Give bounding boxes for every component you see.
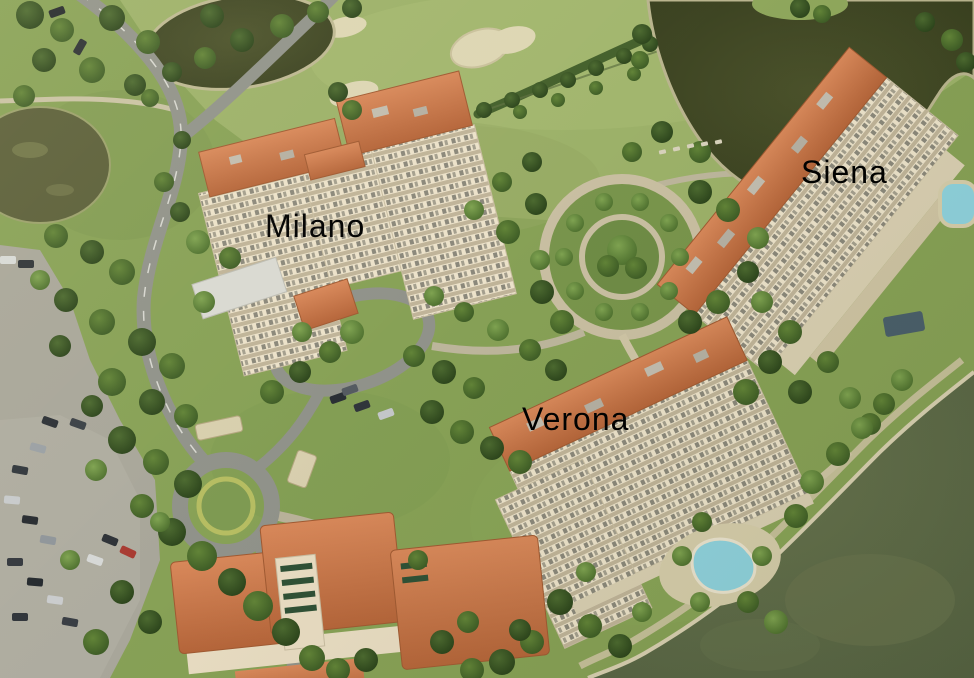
tree — [576, 562, 596, 582]
tree — [98, 368, 126, 396]
tree — [81, 395, 103, 417]
tree — [194, 47, 216, 69]
tree — [631, 303, 649, 321]
tree — [873, 393, 895, 415]
tree — [186, 230, 210, 254]
tree — [678, 310, 702, 334]
tree — [788, 380, 812, 404]
tree — [340, 320, 364, 344]
tree — [480, 436, 504, 460]
tree — [813, 5, 831, 23]
tree — [489, 649, 515, 675]
tree — [627, 67, 641, 81]
tree — [530, 280, 554, 304]
tree — [243, 591, 273, 621]
tree — [342, 100, 362, 120]
tree — [632, 602, 652, 622]
tree — [622, 142, 642, 162]
tree — [173, 131, 191, 149]
tree — [545, 359, 567, 381]
siena-pool — [940, 182, 974, 226]
tree — [403, 345, 425, 367]
tree — [851, 417, 873, 439]
tree — [764, 610, 788, 634]
tree — [60, 550, 80, 570]
tree — [200, 4, 224, 28]
tree — [141, 89, 159, 107]
tree — [578, 614, 602, 638]
tree — [13, 85, 35, 107]
tree — [660, 214, 678, 232]
tree — [555, 248, 573, 266]
building-label-siena: Siena — [801, 156, 888, 190]
parked-car — [12, 613, 28, 621]
tree — [108, 426, 136, 454]
building-label-verona: Verona — [522, 403, 629, 437]
parked-car — [18, 260, 34, 268]
tree — [751, 291, 773, 313]
tree — [463, 377, 485, 399]
tree — [839, 387, 861, 409]
tree — [80, 240, 104, 264]
tree — [706, 290, 730, 314]
tree — [299, 645, 325, 671]
tree — [550, 310, 574, 334]
tree — [784, 504, 808, 528]
tree — [193, 291, 215, 313]
tree — [159, 353, 185, 379]
tree — [752, 546, 772, 566]
tree — [941, 29, 963, 51]
tree — [692, 512, 712, 532]
tree — [595, 303, 613, 321]
tree — [747, 227, 769, 249]
tree — [566, 282, 584, 300]
tree — [154, 172, 174, 192]
tree — [85, 459, 107, 481]
tree — [519, 339, 541, 361]
tree — [758, 350, 782, 374]
tree — [408, 550, 428, 570]
tree — [547, 589, 573, 615]
tree — [109, 259, 135, 285]
tree — [508, 450, 532, 474]
tree — [891, 369, 913, 391]
tree — [420, 400, 444, 424]
building-label-milano: Milano — [265, 210, 365, 244]
tree — [89, 309, 115, 335]
tree — [270, 14, 294, 38]
tree — [128, 328, 156, 356]
tree — [218, 568, 246, 596]
tree — [595, 193, 613, 211]
tree — [430, 630, 454, 654]
tree — [454, 302, 474, 322]
tree — [496, 220, 520, 244]
tree — [551, 93, 565, 107]
tree — [631, 193, 649, 211]
tree — [150, 512, 170, 532]
tree — [509, 619, 531, 641]
tree — [30, 270, 50, 290]
tree — [690, 592, 710, 612]
parked-car — [27, 577, 44, 586]
tree — [778, 320, 802, 344]
tree — [625, 257, 647, 279]
tree — [800, 470, 824, 494]
tree — [716, 198, 740, 222]
tree — [49, 335, 71, 357]
tree — [16, 1, 44, 29]
tree — [424, 286, 444, 306]
tree — [588, 60, 604, 76]
tree — [457, 611, 479, 633]
tree — [530, 250, 550, 270]
tree — [139, 389, 165, 415]
tree — [566, 214, 584, 232]
tree — [187, 541, 217, 571]
tree — [733, 379, 759, 405]
tree — [54, 288, 78, 312]
tree — [589, 81, 603, 95]
parked-car — [7, 558, 23, 566]
tree — [99, 5, 125, 31]
tree — [432, 360, 456, 384]
tree — [138, 610, 162, 634]
tree — [464, 200, 484, 220]
tree — [525, 193, 547, 215]
tree — [688, 180, 712, 204]
tree — [354, 648, 378, 672]
tree — [826, 442, 850, 466]
tree — [143, 449, 169, 475]
tree — [260, 380, 284, 404]
tree — [597, 255, 619, 277]
tree — [174, 470, 202, 498]
tree — [487, 319, 509, 341]
tree — [817, 351, 839, 373]
tree — [672, 546, 692, 566]
tree — [660, 282, 678, 300]
tree — [328, 82, 348, 102]
aerial-scene — [0, 0, 974, 678]
tree — [915, 12, 935, 32]
tree — [79, 57, 105, 83]
parked-car — [0, 256, 16, 264]
tree — [513, 105, 527, 119]
tree — [44, 224, 68, 248]
tree — [83, 629, 109, 655]
tree — [631, 51, 649, 69]
tree — [476, 102, 492, 118]
tree — [292, 322, 312, 342]
tree — [651, 121, 673, 143]
tree — [450, 420, 474, 444]
tree — [532, 82, 548, 98]
tree — [162, 62, 182, 82]
aerial-photo: Milano Siena Verona — [0, 0, 974, 678]
tree — [32, 48, 56, 72]
tree — [671, 248, 689, 266]
tree — [307, 1, 329, 23]
tree — [136, 30, 160, 54]
tree — [632, 24, 652, 44]
tree — [130, 494, 154, 518]
tree — [522, 152, 542, 172]
tree — [289, 361, 311, 383]
tree — [230, 28, 254, 52]
tree — [608, 634, 632, 658]
tree — [170, 202, 190, 222]
tree — [319, 341, 341, 363]
tree — [560, 72, 576, 88]
verona-pool — [692, 539, 755, 592]
tree — [219, 247, 241, 269]
tree — [110, 580, 134, 604]
tree — [737, 591, 759, 613]
tree — [616, 48, 632, 64]
tree — [737, 261, 759, 283]
tree — [174, 404, 198, 428]
tree — [50, 18, 74, 42]
tree — [272, 618, 300, 646]
tree — [124, 74, 146, 96]
tree — [492, 172, 512, 192]
parked-car — [4, 495, 21, 504]
